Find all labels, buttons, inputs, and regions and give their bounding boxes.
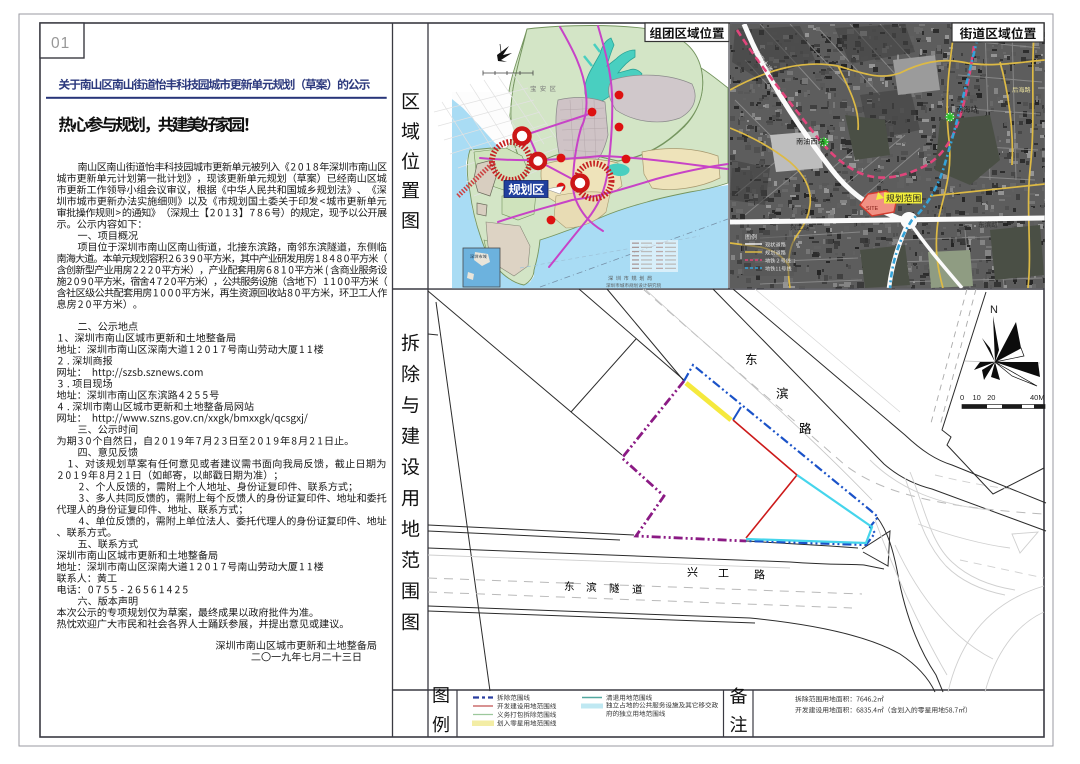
svg-text:N: N <box>990 304 998 316</box>
svg-text:0 10 20: 0 10 20 <box>960 393 995 402</box>
svg-text:40M: 40M <box>1030 393 1045 402</box>
svg-text:01: 01 <box>51 35 70 52</box>
svg-text:SITE: SITE <box>866 206 879 212</box>
